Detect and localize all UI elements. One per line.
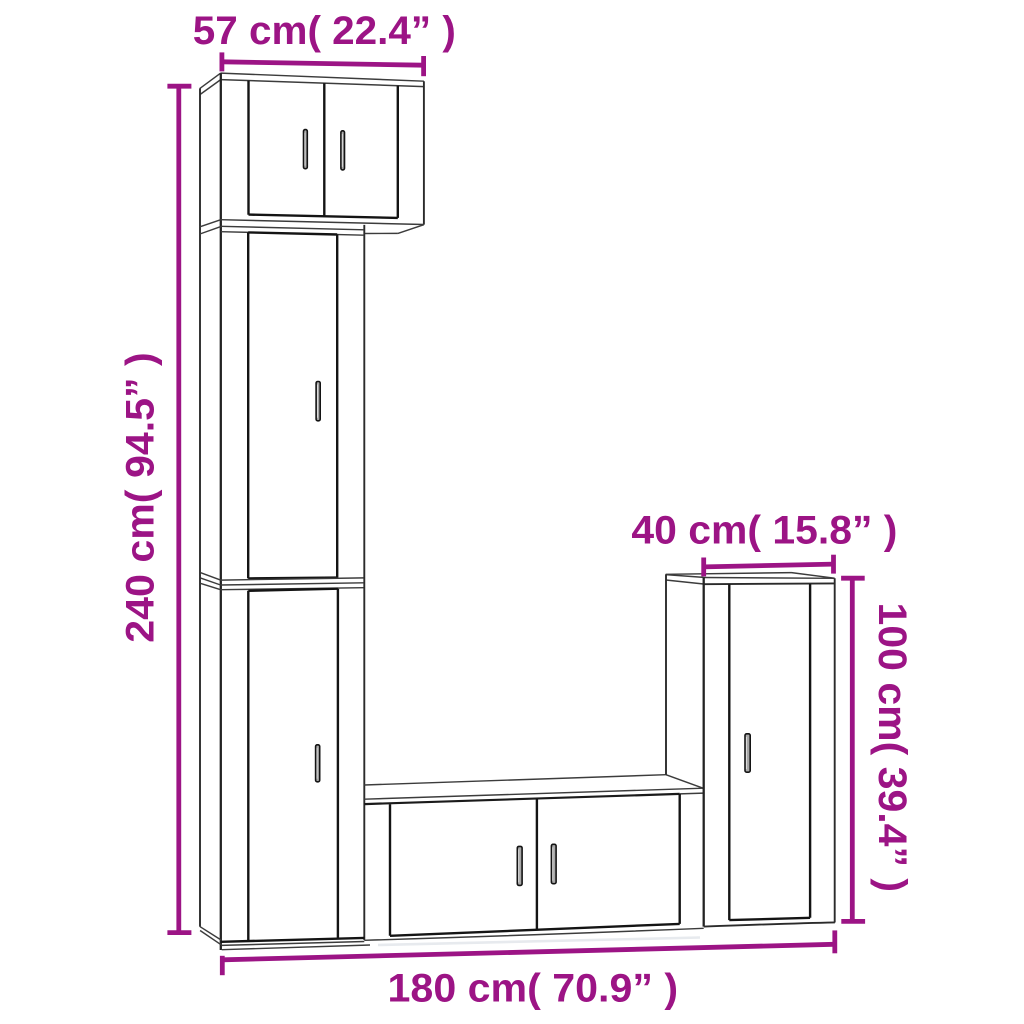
svg-text:40 cm( 15.8” ): 40 cm( 15.8” ) <box>631 509 897 553</box>
svg-text:57 cm( 22.4” ): 57 cm( 22.4” ) <box>193 9 456 53</box>
svg-text:100 cm( 39.4” ): 100 cm( 39.4” ) <box>870 603 914 893</box>
svg-text:180 cm( 70.9” ): 180 cm( 70.9” ) <box>388 966 679 1010</box>
svg-text:240 cm( 94.5” ): 240 cm( 94.5” ) <box>119 352 163 643</box>
